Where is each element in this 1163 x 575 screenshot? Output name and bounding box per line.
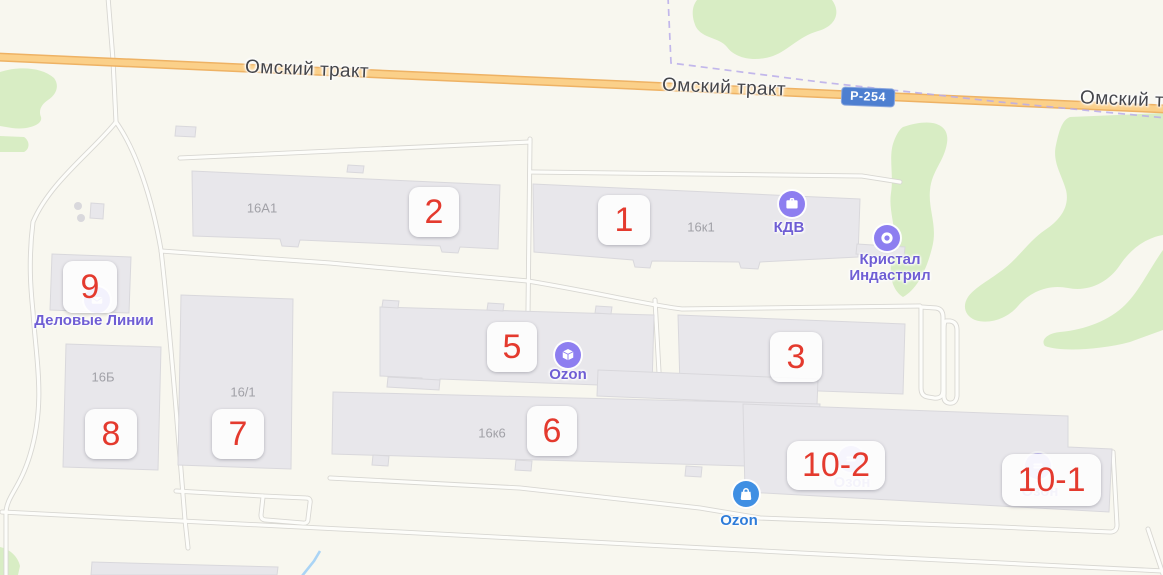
marker-3[interactable]: 3 [770, 332, 822, 382]
marker-10-2[interactable]: 10-2 [787, 441, 885, 490]
marker-7[interactable]: 7 [212, 409, 264, 459]
address-16k1: 16к1 [687, 220, 714, 235]
address-16-1: 16/1 [230, 385, 255, 400]
road-label-omsky-trakt-3: Омский т [1080, 87, 1163, 112]
marker-10-1[interactable]: 10-1 [1002, 454, 1101, 506]
marker-8[interactable]: 8 [85, 409, 137, 459]
building-top-small [175, 126, 196, 137]
marker-6-label: 6 [543, 412, 562, 451]
kdv-briefcase-icon[interactable] [779, 191, 805, 217]
green-left-small [0, 136, 29, 152]
marker-2-label: 2 [425, 193, 444, 232]
marker-10-1-label: 10-1 [1017, 461, 1085, 500]
marker-7-label: 7 [229, 415, 248, 454]
address-16k6: 16к6 [478, 426, 505, 441]
kristall-industrial-label[interactable]: Кристал Индастрил [834, 252, 946, 284]
address-16b: 16Б [92, 370, 115, 385]
map-terrain-layer [0, 0, 1163, 575]
marker-6[interactable]: 6 [527, 406, 577, 456]
ozon-mid-label[interactable]: Ozon [549, 366, 587, 383]
kdv-label[interactable]: КДВ [774, 219, 805, 236]
marker-1[interactable]: 1 [598, 195, 650, 245]
marker-9-label: 9 [81, 268, 100, 307]
address-16a1: 16А1 [247, 201, 277, 216]
map-canvas[interactable]: Озон Озон 2 1 9 5 3 6 8 7 10-2 10-1 КДВ … [0, 0, 1163, 575]
marker-9[interactable]: 9 [63, 261, 117, 313]
marker-5-label: 5 [503, 328, 522, 367]
marker-10-2-label: 10-2 [802, 446, 870, 485]
ozon-bag-icon[interactable] [733, 481, 759, 507]
marker-3-label: 3 [787, 338, 806, 377]
marker-1-label: 1 [615, 201, 634, 240]
ozon-bottom-label[interactable]: Ozon [720, 512, 758, 529]
marker-2[interactable]: 2 [409, 187, 459, 237]
marker-5[interactable]: 5 [487, 322, 537, 372]
ozon-package-icon[interactable] [555, 342, 581, 368]
route-shield-r254: Р-254 [841, 86, 896, 107]
delovye-linii-label[interactable]: Деловые Линии [34, 312, 154, 329]
kristall-industrial-ring-icon[interactable] [874, 225, 900, 251]
marker-8-label: 8 [102, 415, 121, 454]
